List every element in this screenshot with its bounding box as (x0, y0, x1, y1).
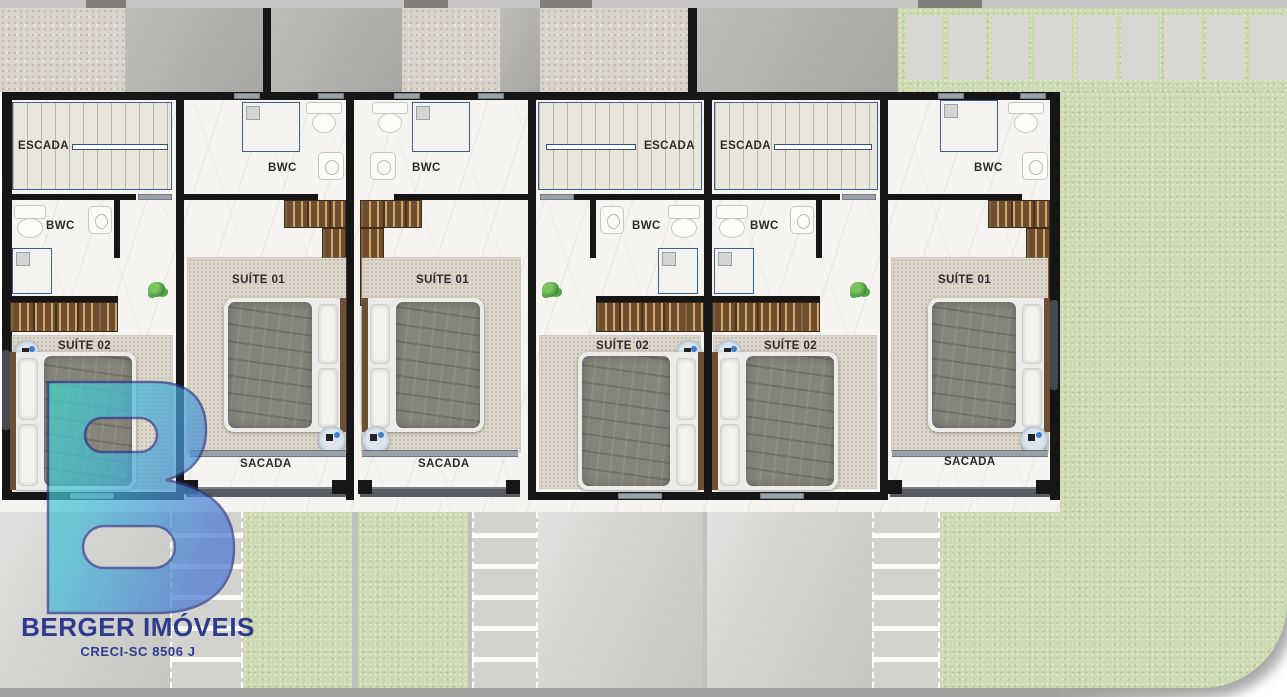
wall-stub (332, 480, 346, 494)
bathroom-label: BWC (412, 162, 441, 174)
partition-wall (590, 200, 596, 258)
sink-icon (318, 152, 344, 180)
back-lawn-patch (358, 512, 468, 688)
suite-label: SUÍTE 02 (764, 340, 817, 352)
shower-icon (412, 102, 470, 152)
stairs-label: ESCADA (720, 140, 771, 152)
bathroom-label: BWC (974, 162, 1003, 174)
toilet-icon (719, 218, 745, 238)
roof-beam (86, 0, 126, 8)
party-wall (263, 8, 271, 92)
floor-plan-image: ESCADA BWC SUÍTE 02 BWC SUÍTE 01 SACADA (0, 0, 1287, 697)
shower-icon (658, 248, 698, 294)
roof-terrace-concrete (125, 8, 263, 92)
stairs-label: ESCADA (644, 140, 695, 152)
partition-wall (816, 200, 822, 258)
wall-stub (888, 480, 902, 494)
party-wall (528, 92, 536, 500)
balcony-label: SACADA (418, 458, 470, 470)
party-wall (688, 8, 697, 92)
top-edge-strip (0, 0, 1287, 8)
door-sill (760, 493, 804, 499)
wardrobe (360, 200, 422, 228)
paver-walk (872, 512, 940, 688)
exterior-wall-right (1050, 92, 1060, 500)
window (1050, 300, 1058, 390)
toilet-icon (312, 113, 336, 133)
shower-icon (714, 248, 754, 294)
balcony-label: SACADA (944, 456, 996, 468)
driveway (538, 512, 703, 688)
toilet-icon (1014, 113, 1038, 133)
bathroom-label: BWC (750, 220, 779, 232)
roof-terrace-gravel (540, 8, 688, 92)
bed (712, 352, 838, 490)
bed (928, 298, 1050, 432)
window (2, 350, 10, 430)
sink-icon (370, 152, 396, 180)
shower-icon (940, 100, 998, 152)
wardrobe (284, 200, 346, 228)
back-lawn-patch (243, 512, 352, 688)
wardrobe (712, 302, 820, 332)
roof-beam (540, 0, 592, 8)
sink-icon (88, 206, 112, 234)
door-sill (318, 93, 344, 99)
party-wall (704, 92, 712, 500)
roof-terrace-concrete (271, 8, 402, 92)
agency-logo-b-icon (38, 380, 238, 615)
wardrobe (596, 302, 704, 332)
suite-label: SUÍTE 02 (596, 340, 649, 352)
bed (362, 298, 484, 432)
driveway (707, 512, 872, 688)
partition-wall (114, 200, 120, 258)
door-sill (842, 194, 876, 200)
sink-icon (790, 206, 814, 234)
bed (578, 352, 704, 490)
agency-name: BERGER IMÓVEIS (18, 612, 258, 643)
toilet-icon (14, 205, 46, 219)
wall-stub (1036, 480, 1050, 494)
stair-handrail (774, 144, 872, 150)
balcony-railing (360, 487, 520, 497)
party-wall (880, 92, 888, 500)
door-sill (540, 194, 574, 200)
party-wall (346, 92, 354, 500)
door-sill (234, 93, 260, 99)
wardrobe (988, 200, 1050, 228)
shower-icon (242, 102, 300, 152)
suite-label: SUÍTE 01 (416, 274, 469, 286)
sink-icon (1022, 152, 1048, 180)
roof-terrace-concrete (500, 8, 540, 92)
agency-license: CRECI-SC 8506 J (18, 644, 258, 659)
toilet-icon (378, 113, 402, 133)
exterior-wall-bottom (528, 492, 888, 500)
bathroom-label: BWC (46, 220, 75, 232)
bed (224, 298, 346, 432)
suite-label: SUÍTE 01 (232, 274, 285, 286)
balcony-label: SACADA (240, 458, 292, 470)
roof-terrace-gravel (0, 8, 125, 92)
door-sill (138, 194, 172, 200)
back-lawn (940, 512, 1062, 688)
bathroom-label: BWC (268, 162, 297, 174)
door-sill (938, 93, 964, 99)
door-sill (478, 93, 504, 99)
wardrobe (10, 302, 118, 332)
stairs-label: ESCADA (18, 140, 69, 152)
door-sill (618, 493, 662, 499)
stair-handrail (72, 144, 168, 150)
roof-beam (918, 0, 982, 8)
shower-icon (12, 248, 52, 294)
agency-logo (38, 380, 238, 615)
bathroom-label: BWC (632, 220, 661, 232)
balcony-railing (890, 487, 1050, 497)
roof-beam (404, 0, 448, 8)
door-sill (394, 93, 420, 99)
sliding-door (362, 450, 518, 457)
paver-walk (472, 512, 538, 688)
toilet-icon (668, 205, 700, 219)
roof-terrace-concrete (697, 8, 898, 92)
sink-icon (600, 206, 624, 234)
bottom-shadow (0, 688, 1240, 697)
wall-stub (506, 480, 520, 494)
door-sill (1020, 93, 1046, 99)
toilet-icon (17, 218, 43, 238)
wall-stub (358, 480, 372, 494)
stair-handrail (546, 144, 636, 150)
toilet-icon (671, 218, 697, 238)
toilet-icon (716, 205, 748, 219)
driveway-pavers (906, 15, 1287, 80)
suite-label: SUÍTE 02 (58, 340, 111, 352)
suite-label: SUÍTE 01 (938, 274, 991, 286)
side-lawn (1060, 92, 1287, 688)
roof-terrace-gravel (402, 8, 500, 92)
